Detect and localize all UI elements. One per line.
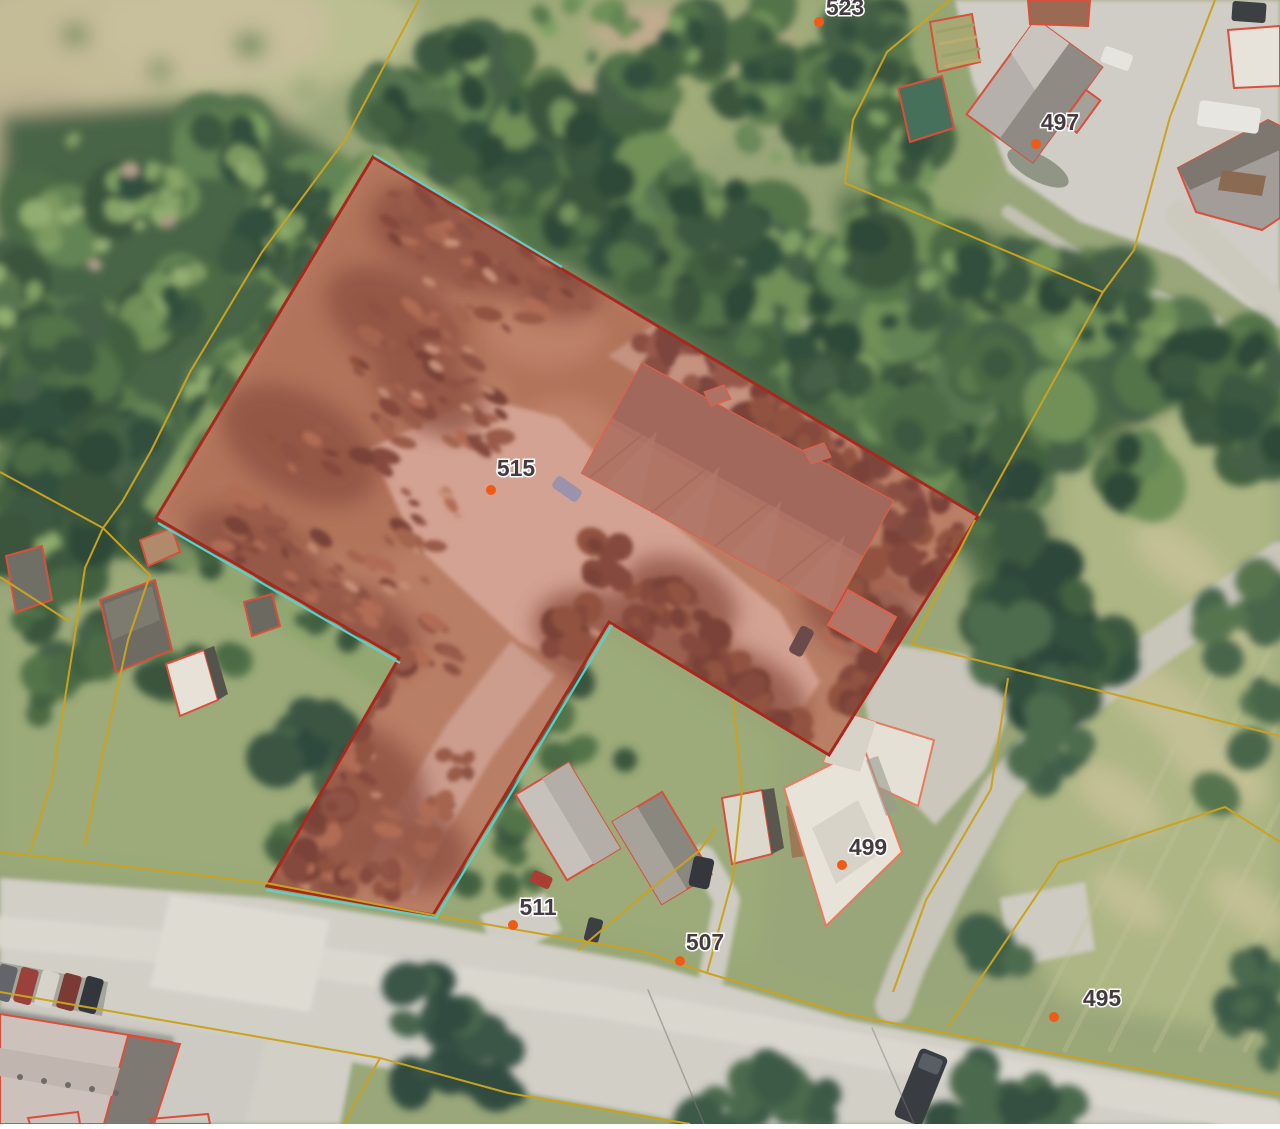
- svg-text:511: 511: [519, 894, 556, 920]
- svg-text:495: 495: [1083, 985, 1122, 1011]
- svg-text:507: 507: [686, 929, 724, 955]
- svg-text:523: 523: [826, 0, 864, 20]
- svg-text:515: 515: [497, 455, 536, 481]
- svg-text:497: 497: [1041, 109, 1079, 135]
- svg-text:499: 499: [849, 834, 887, 860]
